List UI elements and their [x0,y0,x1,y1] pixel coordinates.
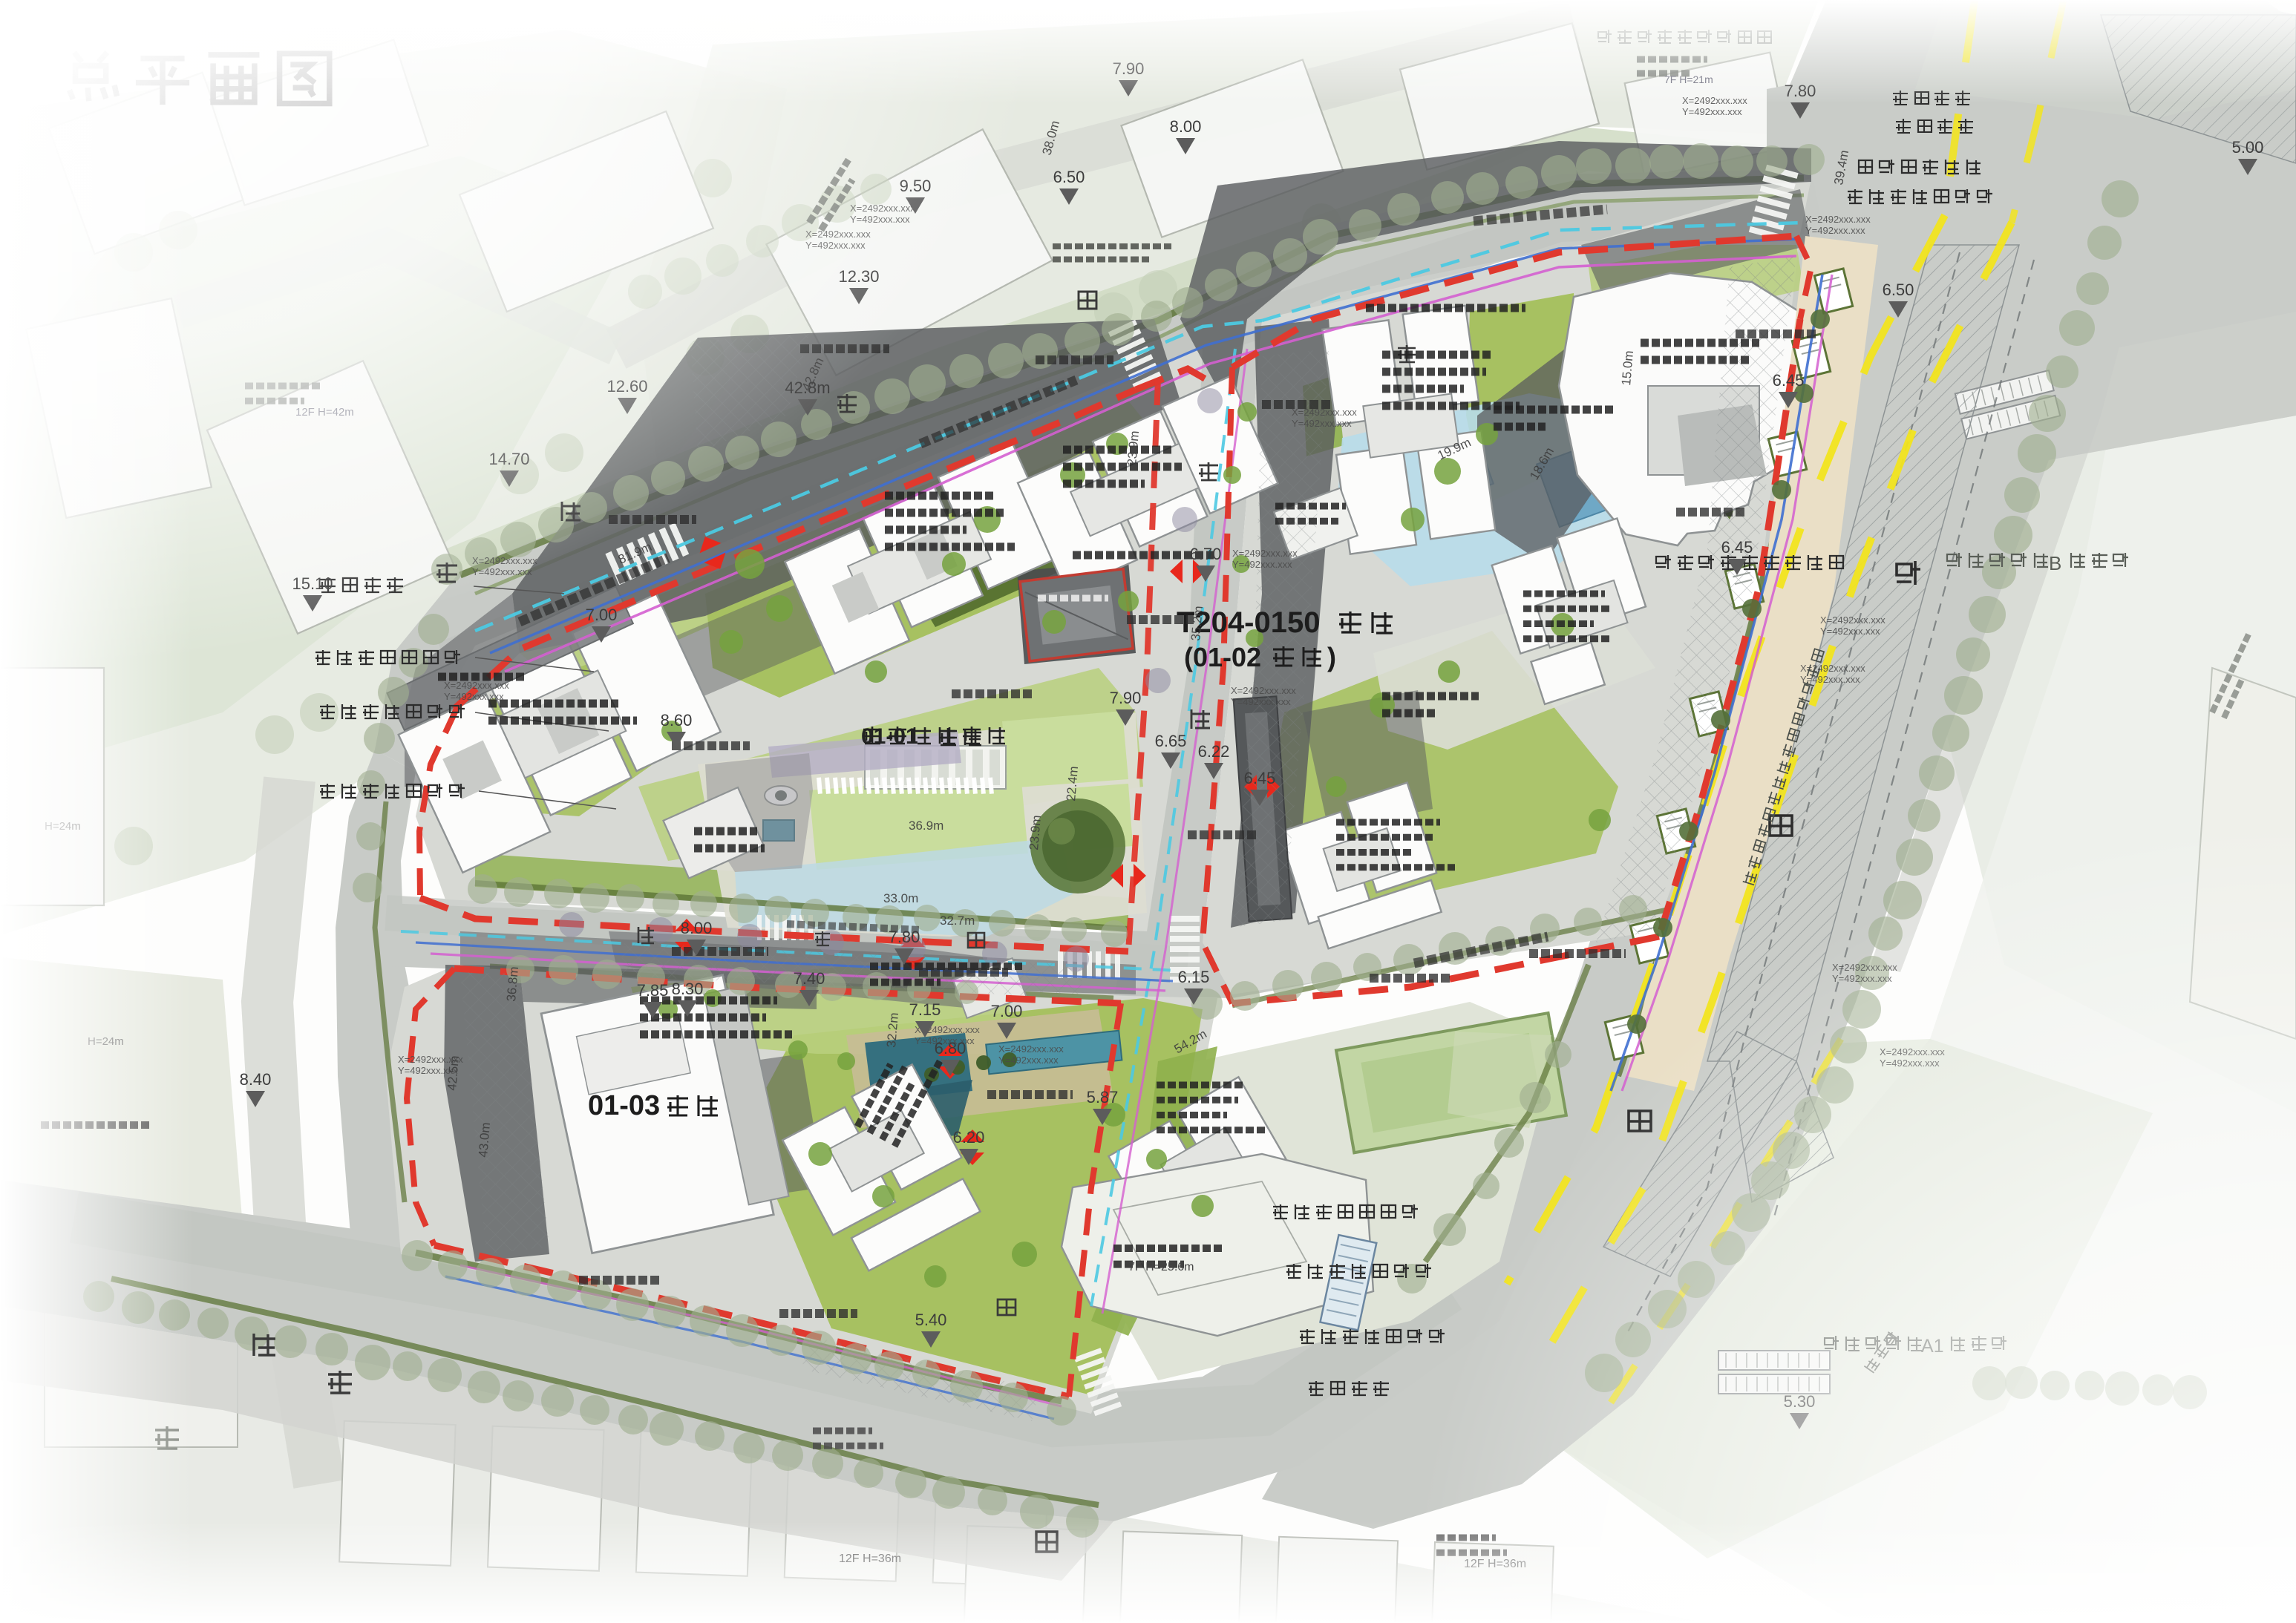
svg-text:B: B [2049,552,2061,574]
svg-text:6.45: 6.45 [1721,538,1753,557]
svg-text:32.7m: 32.7m [940,914,975,928]
svg-text:8.60: 8.60 [661,711,693,729]
svg-text:5.40: 5.40 [915,1311,947,1329]
svg-text:): ) [1327,642,1336,672]
svg-text:Y=492xxx.xxx: Y=492xxx.xxx [1682,106,1742,117]
svg-text:8.40: 8.40 [240,1070,272,1089]
svg-text:Y=492xxx.xxx: Y=492xxx.xxx [1820,626,1880,637]
svg-text:6.45: 6.45 [1773,371,1805,390]
svg-text:6.22: 6.22 [1198,742,1230,761]
svg-text:6.80: 6.80 [935,1039,967,1058]
svg-text:7.90: 7.90 [1110,689,1142,707]
svg-text:7F H=25.6m: 7F H=25.6m [1128,1261,1194,1273]
svg-text:X=2492xxx.xxx: X=2492xxx.xxx [1800,663,1865,674]
svg-text:Y=492xxx.xxx: Y=492xxx.xxx [444,691,504,702]
svg-text:7.80: 7.80 [889,928,920,946]
svg-text:Y=492xxx.xxx: Y=492xxx.xxx [1292,418,1352,429]
svg-text:(01-02: (01-02 [1184,642,1261,672]
svg-text:6.50: 6.50 [1053,168,1085,186]
svg-text:X=2492xxx.xxx: X=2492xxx.xxx [998,1043,1064,1055]
svg-text:01-03: 01-03 [588,1090,660,1121]
svg-text:6.15: 6.15 [1178,968,1210,986]
svg-text:36.9m: 36.9m [909,819,943,833]
svg-text:Y=492xxx.xxx: Y=492xxx.xxx [1805,225,1865,236]
svg-text:X=2492xxx.xxx: X=2492xxx.xxx [1820,614,1885,626]
svg-text:5.00: 5.00 [2232,138,2264,157]
svg-text:8.00: 8.00 [1170,117,1202,136]
svg-text:6.50: 6.50 [1883,281,1914,299]
svg-text:33.0m: 33.0m [883,891,918,905]
svg-text:X=2492xxx.xxx: X=2492xxx.xxx [1231,685,1296,696]
svg-text:01-01: 01-01 [861,724,918,749]
svg-text:X=2492xxx.xxx: X=2492xxx.xxx [1805,214,1871,225]
svg-text:X=2492xxx.xxx: X=2492xxx.xxx [444,680,509,691]
svg-text:6.20: 6.20 [953,1128,985,1147]
svg-text:6.45: 6.45 [1244,769,1276,787]
svg-text:7.15: 7.15 [909,1000,941,1019]
svg-text:6.65: 6.65 [1155,732,1187,750]
svg-text:Y=492xxx.xxx: Y=492xxx.xxx [1800,674,1860,685]
svg-text:7.00: 7.00 [991,1002,1023,1020]
svg-text:5.87: 5.87 [1087,1088,1119,1106]
svg-text:Y=492xxx.xxx: Y=492xxx.xxx [998,1055,1059,1066]
svg-text:6.70: 6.70 [1190,545,1222,563]
svg-text:7.85: 7.85 [637,981,669,1000]
svg-text:Y=492xxx.xxx: Y=492xxx.xxx [1231,696,1291,707]
svg-text:X=2492xxx.xxx: X=2492xxx.xxx [1292,407,1357,418]
svg-text:7.40: 7.40 [794,969,825,988]
svg-text:8.00: 8.00 [681,919,713,937]
svg-text:8.30: 8.30 [672,980,704,998]
svg-text:Y=492xxx.xxx: Y=492xxx.xxx [1232,559,1292,570]
svg-text:X=2492xxx.xxx: X=2492xxx.xxx [1232,548,1298,559]
